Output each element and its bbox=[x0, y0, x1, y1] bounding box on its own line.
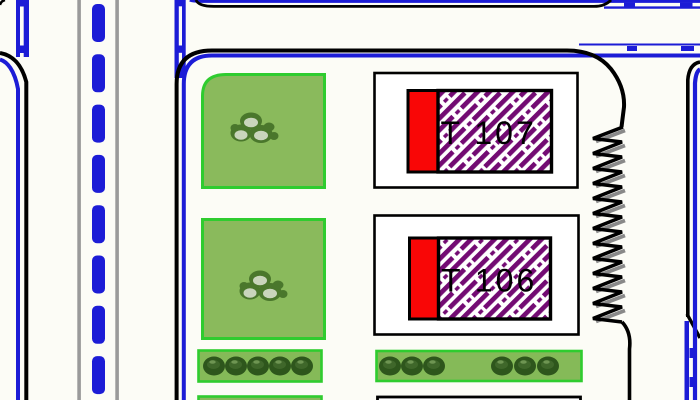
svg-text:T 106: T 106 bbox=[441, 263, 537, 299]
svg-text:T 107: T 107 bbox=[441, 115, 537, 151]
